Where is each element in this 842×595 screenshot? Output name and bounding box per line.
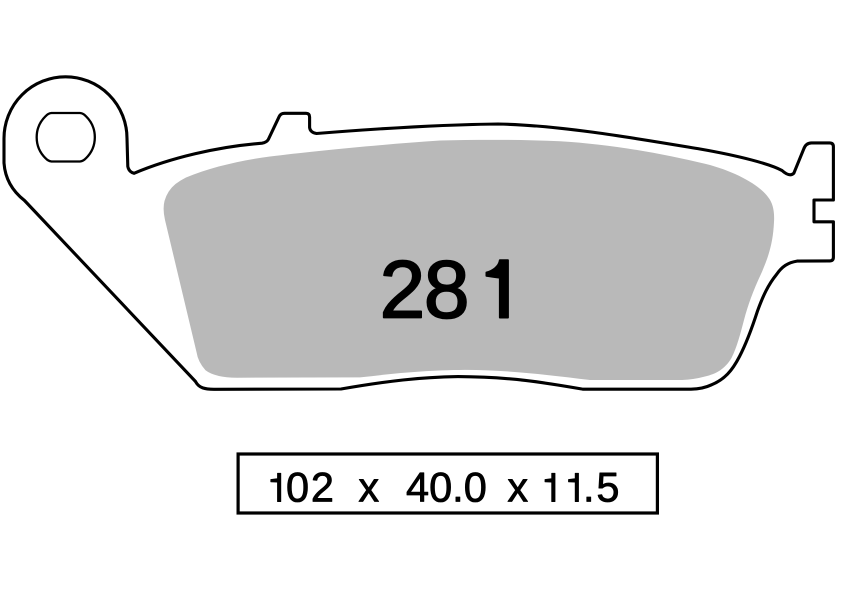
svg-text:28: 28 <box>380 245 469 336</box>
svg-text:x: x <box>358 464 379 511</box>
svg-text:x: x <box>507 464 528 511</box>
svg-text:.5: .5 <box>583 464 621 511</box>
svg-text:02: 02 <box>286 464 336 511</box>
svg-text:40.0: 40.0 <box>406 464 487 511</box>
